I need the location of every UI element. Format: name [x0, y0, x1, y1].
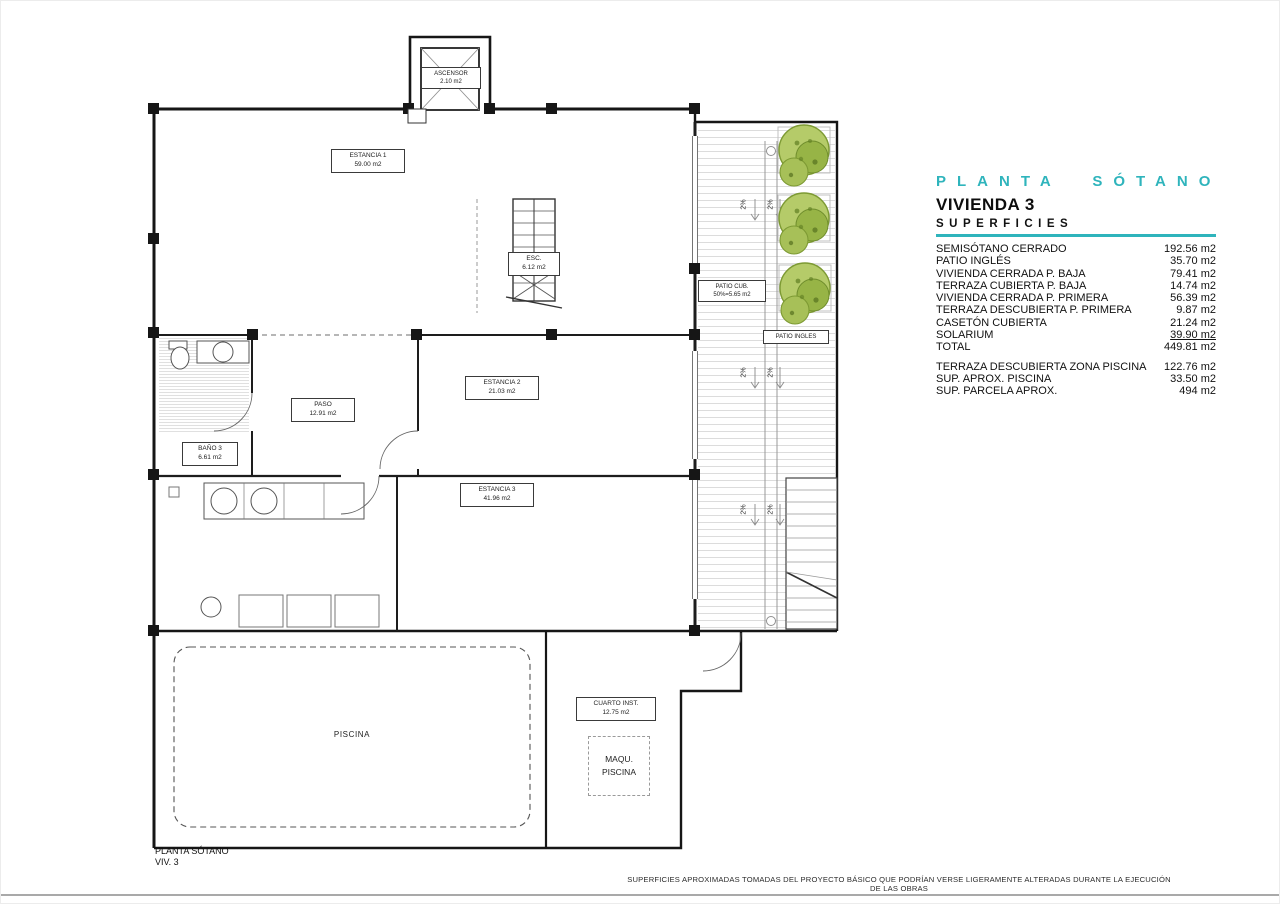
room-name: ASCENSOR [434, 70, 468, 78]
kitchen-fixtures [169, 483, 379, 627]
room-name: ESC. [526, 255, 541, 264]
surface-rows: SEMISÓTANO CERRADO 192.56 m2 PATIO INGLÉ… [936, 243, 1216, 398]
surface-row: TERRAZA CUBIERTA P. BAJA 14.74 m2 [936, 280, 1216, 292]
surface-label: TERRAZA DESCUBIERTA ZONA PISCINA [936, 361, 1146, 373]
surface-value: 122.76 m2 [1164, 361, 1216, 373]
surface-label: TERRAZA CUBIERTA P. BAJA [936, 280, 1086, 292]
room-name: MAQU. [605, 753, 633, 766]
room-label-ascensor: ASCENSOR 2.10 m2 [421, 67, 481, 89]
room-label-estancia-3: ESTANCIA 3 41.96 m2 [460, 483, 534, 507]
room-label-estancia-2: ESTANCIA 2 21.03 m2 [465, 376, 539, 400]
room-label-paso: PASO 12.91 m2 [291, 398, 355, 422]
slope-marker: 2% [741, 198, 748, 212]
surface-label: SUP. PARCELA APROX. [936, 385, 1057, 397]
exterior-staircase [786, 478, 837, 629]
accent-rule [936, 234, 1216, 237]
surface-label: SEMISÓTANO CERRADO [936, 243, 1067, 255]
room-name: ESTANCIA 2 [483, 379, 520, 388]
surface-row: SUP. APROX. PISCINA 33.50 m2 [936, 373, 1216, 385]
room-name: PATIO CUB. [715, 283, 748, 291]
surface-value: 21.24 m2 [1170, 317, 1216, 329]
room-name: ESTANCIA 1 [349, 152, 386, 161]
room-name: ESTANCIA 3 [478, 486, 515, 495]
window-wall [693, 136, 698, 599]
room-area: 2.10 m2 [440, 78, 462, 86]
surface-row: CASETÓN CUBIERTA 21.24 m2 [936, 317, 1216, 329]
room-area: 59.00 m2 [354, 161, 381, 170]
room-area: PISCINA [602, 766, 636, 779]
surface-label: VIVIENDA CERRADA P. BAJA [936, 268, 1086, 280]
surface-row: SUP. PARCELA APROX. 494 m2 [936, 385, 1216, 397]
slope-marker: 2% [768, 366, 775, 380]
surface-row: TERRAZA DESCUBIERTA P. PRIMERA 9.87 m2 [936, 304, 1216, 316]
room-area: 6.61 m2 [198, 454, 222, 463]
room-label-patio-ingles: PATIO INGLES [763, 330, 829, 344]
footer-divider [1, 894, 1280, 896]
surface-label: SUP. APROX. PISCINA [936, 373, 1051, 385]
surface-value: 14.74 m2 [1170, 280, 1216, 292]
surface-label: TERRAZA DESCUBIERTA P. PRIMERA [936, 304, 1132, 316]
plan-caption: PLANTA SÓTANO VIV. 3 [155, 846, 229, 867]
surface-value: 494 m2 [1179, 385, 1216, 397]
room-name: PASO [314, 401, 332, 410]
slope-marker: 2% [768, 198, 775, 212]
surface-row: SOLARIUM 39.90 m2 [936, 329, 1216, 341]
surface-label: TOTAL [936, 341, 970, 353]
floor-plan-sheet: ASCENSOR 2.10 m2 ESTANCIA 1 59.00 m2 ESC… [0, 0, 1280, 904]
room-label-piscina: PISCINA [312, 730, 392, 741]
room-label-bano-3: BAÑO 3 6.61 m2 [182, 442, 238, 466]
surface-row: TERRAZA DESCUBIERTA ZONA PISCINA 122.76 … [936, 361, 1216, 373]
room-label-cuarto-inst: CUARTO INST. 12.75 m2 [576, 697, 656, 721]
room-area: 41.96 m2 [483, 495, 510, 504]
slope-marker: 2% [741, 503, 748, 517]
room-name: PISCINA [334, 730, 370, 741]
room-area: 12.91 m2 [309, 410, 336, 419]
room-label-estancia-1: ESTANCIA 1 59.00 m2 [331, 149, 405, 173]
surface-row: VIVIENDA CERRADA P. PRIMERA 56.39 m2 [936, 292, 1216, 304]
surface-row: SEMISÓTANO CERRADO 192.56 m2 [936, 243, 1216, 255]
door-arcs [214, 393, 741, 671]
surface-label: SOLARIUM [936, 329, 993, 341]
room-area: 12.75 m2 [602, 709, 629, 718]
surface-value: 35.70 m2 [1170, 255, 1216, 267]
surface-label: VIVIENDA CERRADA P. PRIMERA [936, 292, 1108, 304]
room-area: 6.12 m2 [522, 264, 546, 273]
room-label-escalera: ESC. 6.12 m2 [508, 252, 560, 276]
surface-label: PATIO INGLÉS [936, 255, 1011, 267]
surface-value: 33.50 m2 [1170, 373, 1216, 385]
surface-value: 79.41 m2 [1170, 268, 1216, 280]
trees [778, 125, 831, 324]
room-label-patio-cubierto: PATIO CUB. 50%=5.65 m2 [698, 280, 766, 302]
surface-row: VIVIENDA CERRADA P. BAJA 79.41 m2 [936, 268, 1216, 280]
plan-caption-line2: VIV. 3 [155, 857, 229, 868]
slope-marker: 2% [768, 503, 775, 517]
surface-value: 449.81 m2 [1164, 341, 1216, 353]
room-name: CUARTO INST. [594, 700, 639, 709]
plan-caption-line1: PLANTA SÓTANO [155, 846, 229, 857]
footer-disclaimer: SUPERFICIES APROXIMADAS TOMADAS DEL PROY… [621, 875, 1177, 893]
vivienda-title: VIVIENDA 3 [936, 195, 1220, 215]
superficies-heading: SUPERFICIES [936, 218, 1220, 230]
surface-value: 9.87 m2 [1176, 304, 1216, 316]
slope-marker: 2% [741, 366, 748, 380]
room-name: BAÑO 3 [198, 445, 222, 454]
surface-row-total: TOTAL 449.81 m2 [936, 341, 1216, 353]
room-name: PATIO INGLES [776, 333, 817, 341]
surface-row: PATIO INGLÉS 35.70 m2 [936, 255, 1216, 267]
room-area: 21.03 m2 [488, 388, 515, 397]
surface-value: 192.56 m2 [1164, 243, 1216, 255]
plan-title: PLANTA SÓTANO [936, 173, 1220, 190]
surface-value: 56.39 m2 [1170, 292, 1216, 304]
surface-value: 39.90 m2 [1170, 329, 1216, 341]
surface-label: CASETÓN CUBIERTA [936, 317, 1047, 329]
surface-table-panel: PLANTA SÓTANO VIVIENDA 3 SUPERFICIES SEM… [936, 173, 1220, 398]
room-area: 50%=5.65 m2 [713, 291, 750, 299]
room-label-maquinaria-piscina: MAQU. PISCINA [588, 736, 650, 796]
